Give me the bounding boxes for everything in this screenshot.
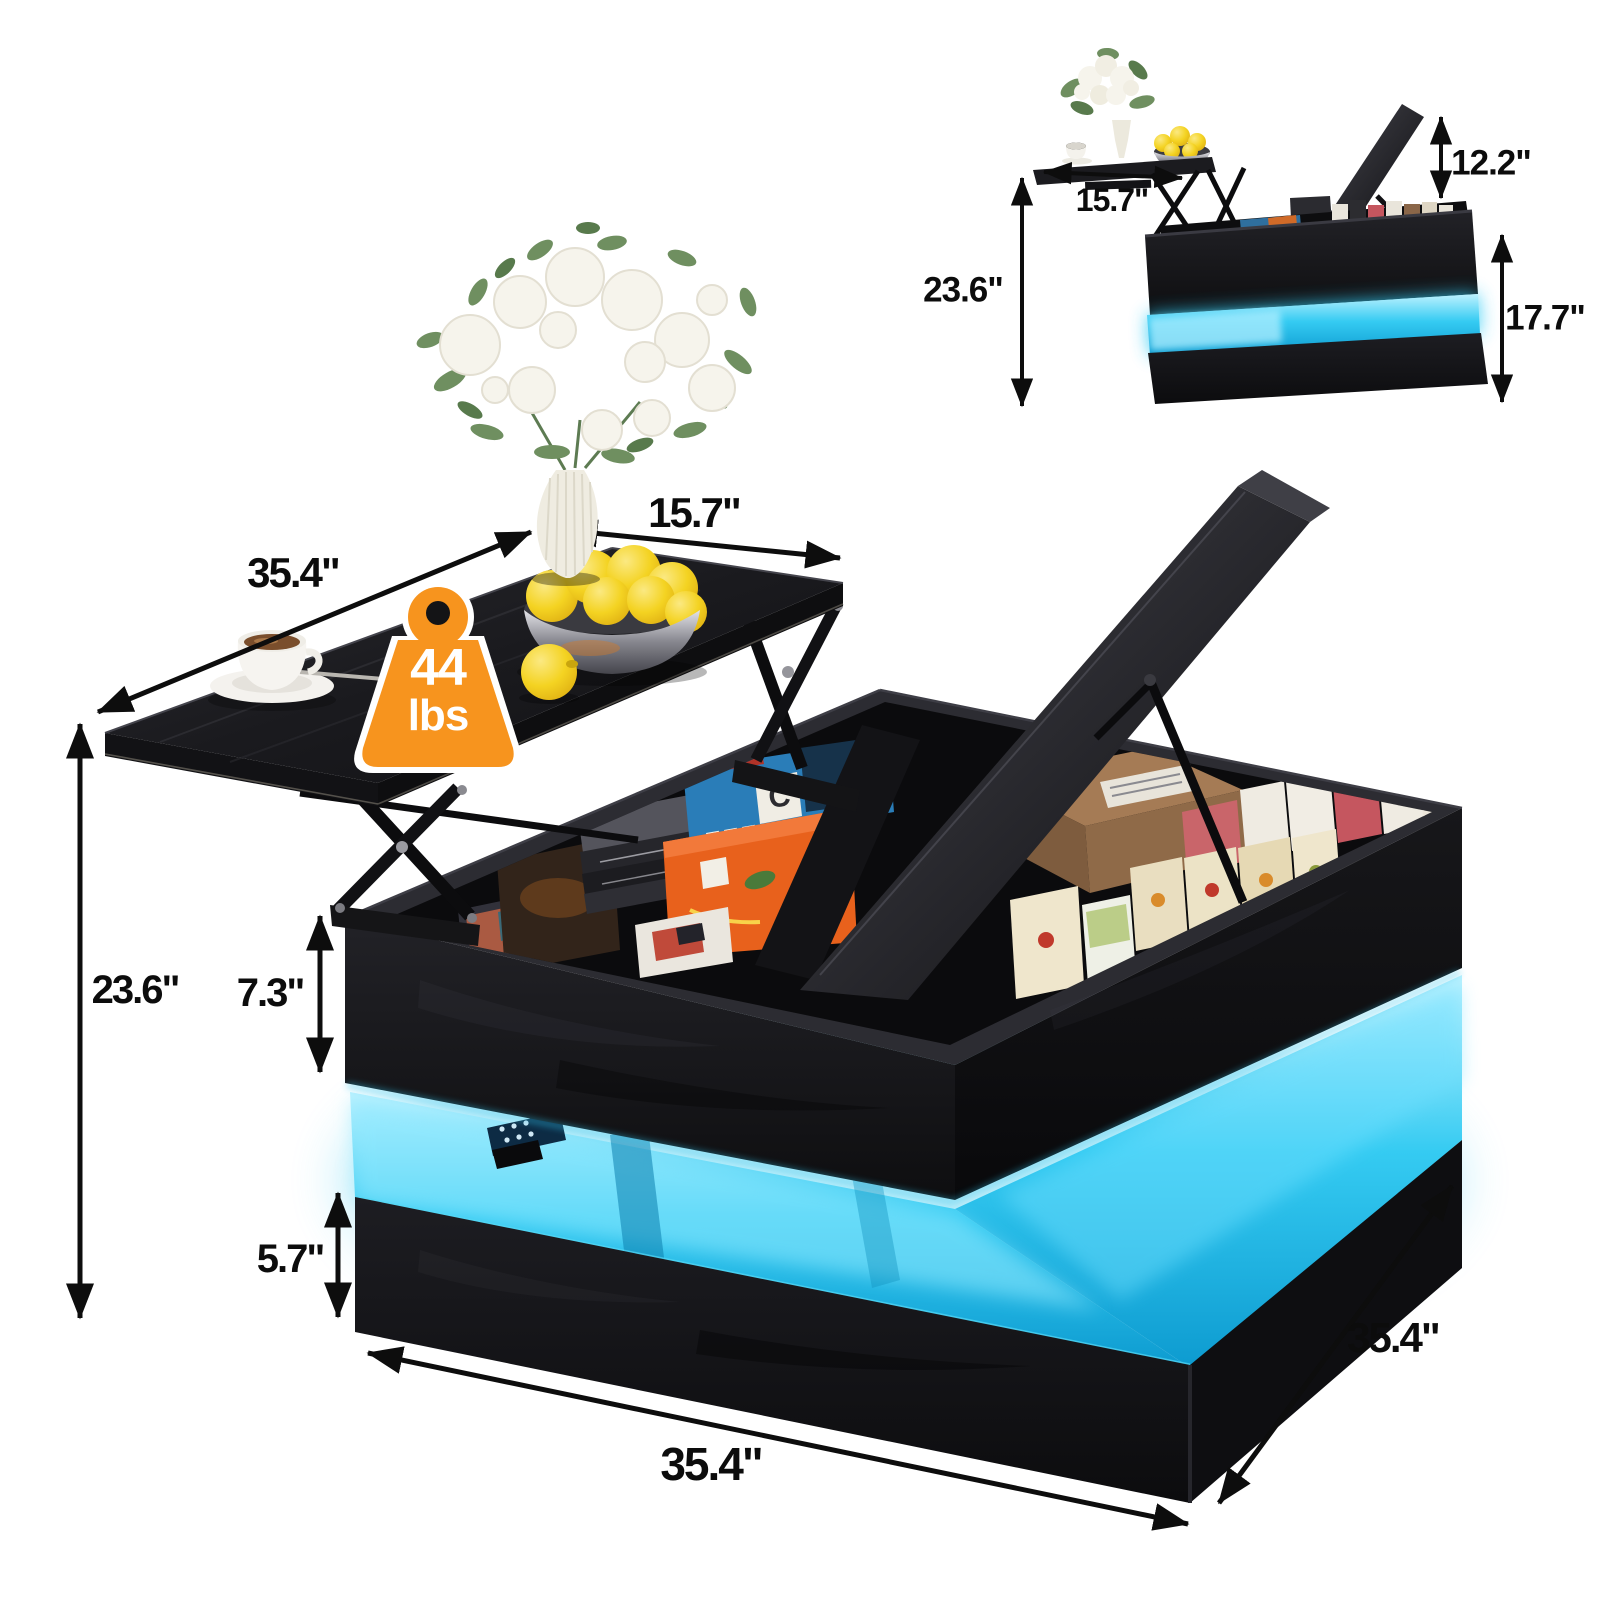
dim-label-top-width: 15.7" — [648, 492, 740, 534]
inset-view — [1022, 47, 1502, 406]
dim-label-overall-height: 23.6" — [92, 970, 179, 1010]
dim-label-base-length: 35.4" — [660, 1441, 761, 1487]
inset-flower-bouquet — [1057, 47, 1156, 118]
inset-vase — [1112, 120, 1131, 158]
dim-label-inset-lift-height: 12.2" — [1451, 146, 1531, 181]
weight-badge-unit: lbs — [408, 694, 469, 738]
dim-label-inset-table-height: 17.7" — [1505, 301, 1585, 336]
dim-label-base-depth: 35.4" — [1347, 1317, 1439, 1359]
dim-label-inset-tabletop-width: 15.7" — [1076, 184, 1148, 216]
dim-label-base-height: 5.7" — [257, 1239, 324, 1279]
dim-label-storage-depth: 7.3" — [237, 973, 304, 1013]
product-dimension-infographic: C — [0, 0, 1601, 1601]
inset-coffee-cup — [1062, 143, 1092, 165]
weight-badge-value: 44 — [410, 642, 466, 694]
dim-label-top-length: 35.4" — [247, 552, 339, 594]
flower-bouquet — [414, 222, 759, 466]
main-view: C — [80, 222, 1464, 1524]
dim-label-inset-overall-height: 23.6" — [923, 273, 1003, 308]
